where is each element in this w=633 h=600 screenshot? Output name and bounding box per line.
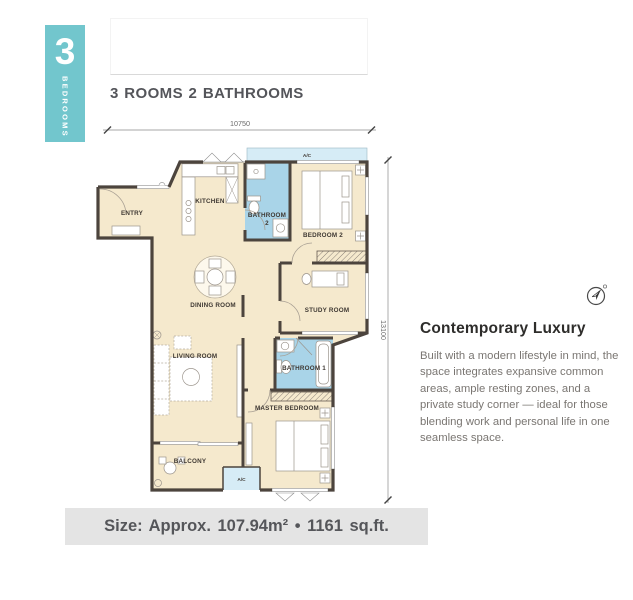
size-bar: Size: Approx. 107.94m² • 1161 sq.ft. <box>65 508 428 545</box>
page-title: 3 ROOMS 2 BATHROOMS <box>110 85 304 102</box>
room-label-kitchen: KITCHEN <box>195 198 225 205</box>
description-heading: Contemporary Luxury <box>420 320 620 338</box>
description-block: Contemporary Luxury Built with a modern … <box>420 320 620 446</box>
room-label-bedroom2: BEDROOM 2 <box>303 232 343 239</box>
sliding-door-icon <box>160 441 200 444</box>
floor-plan: ENTRY KITCHEN BATHROOM 2 BEDROOM 2 DININ… <box>90 105 400 515</box>
compass-icon <box>584 282 610 308</box>
room-label-living: LIVING ROOM <box>173 353 218 360</box>
room-label-bathroom2: BATHROOM <box>248 212 286 219</box>
dimension-width-label: 10750 <box>230 119 250 128</box>
ac-label-top: A/C <box>303 153 312 159</box>
bedroom2-wardrobe-icon <box>317 251 367 262</box>
floor-plan-svg: ENTRY KITCHEN BATHROOM 2 BEDROOM 2 DININ… <box>90 105 400 515</box>
entry-cabinet-icon <box>112 226 140 235</box>
room-label-study: STUDY ROOM <box>305 307 350 314</box>
brochure-page: 3 BEDROOMS 3 ROOMS 2 BATHROOMS <box>0 0 633 600</box>
room-label-bathroom1: BATHROOM 1 <box>282 365 326 372</box>
room-label-bathroom2-num: 2 <box>265 220 269 227</box>
description-body: Built with a modern lifestyle in mind, t… <box>420 348 620 446</box>
dimension-height-label: 13100 <box>379 320 388 340</box>
room-label-master: MASTER BEDROOM <box>255 405 319 412</box>
logo-placeholder <box>110 18 368 75</box>
room-label-entry: ENTRY <box>121 210 144 217</box>
badge-label: BEDROOMS <box>61 76 70 138</box>
room-label-balcony: BALCONY <box>174 458 207 465</box>
dining-table-icon <box>194 256 236 298</box>
ac-label-bottom: A/C <box>237 477 246 483</box>
bedroom-count-badge: 3 BEDROOMS <box>45 25 85 142</box>
master-wardrobe-icon <box>271 392 332 401</box>
room-label-dining: DINING ROOM <box>190 302 236 309</box>
badge-number: 3 <box>55 33 76 70</box>
